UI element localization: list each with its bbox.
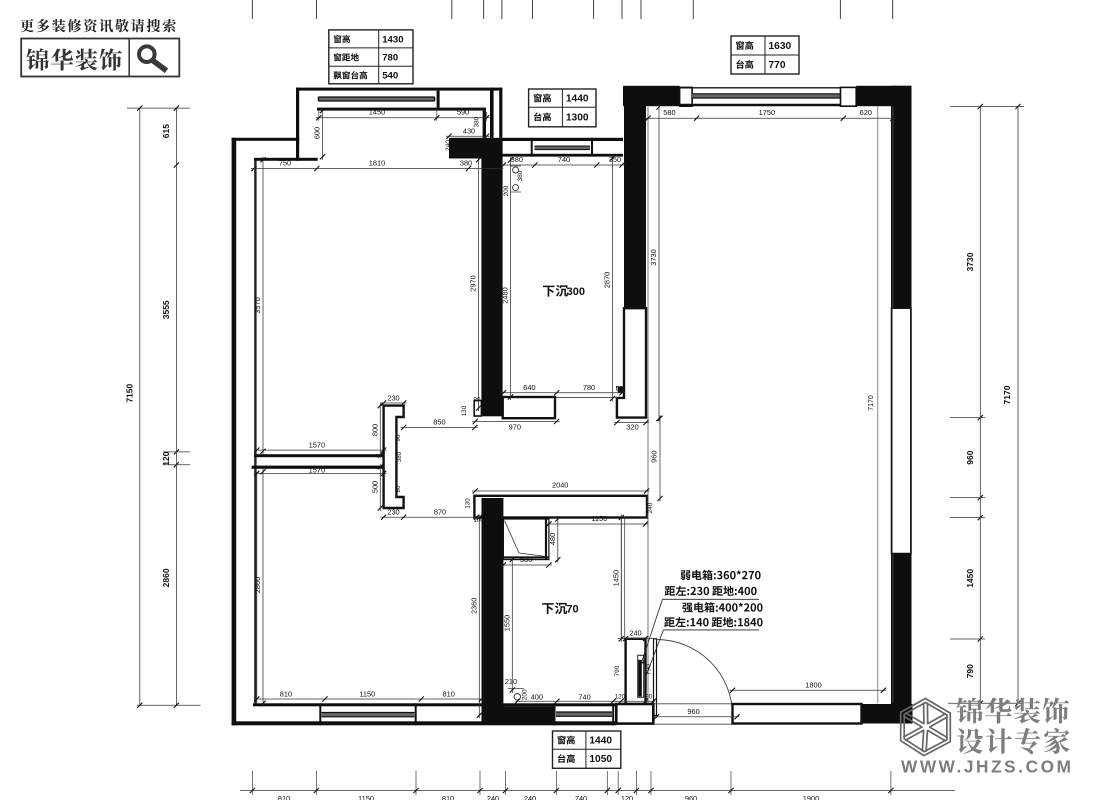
svg-text:1800: 1800 [805,681,821,690]
svg-text:1550: 1550 [503,615,512,631]
svg-text:1450: 1450 [369,108,385,117]
svg-text:1450: 1450 [612,570,621,586]
svg-text:2860: 2860 [253,577,262,593]
svg-text:600: 600 [313,127,322,139]
svg-text:70: 70 [566,604,578,616]
svg-text:640: 640 [523,383,535,392]
svg-text:500: 500 [371,481,380,493]
svg-text:120: 120 [621,794,633,800]
svg-text:240: 240 [647,502,654,513]
svg-text:1900: 1900 [803,794,819,800]
svg-text:1750: 1750 [759,108,775,117]
svg-text:740: 740 [578,692,590,701]
svg-text:1050: 1050 [589,754,612,765]
svg-text:740: 740 [575,794,587,800]
svg-text:970: 970 [509,423,521,432]
svg-text:230: 230 [387,508,399,517]
svg-text:480: 480 [548,533,557,545]
svg-text:200: 200 [521,689,528,700]
svg-text:810: 810 [443,690,455,699]
svg-text:3570: 3570 [253,297,262,313]
svg-text:2860: 2860 [161,568,171,587]
svg-text:615: 615 [161,124,171,138]
svg-text:790: 790 [646,664,653,675]
svg-text:90: 90 [395,434,402,441]
svg-text:3555: 3555 [161,300,171,319]
svg-text:960: 960 [685,794,697,800]
svg-text:1430: 1430 [382,34,403,45]
svg-text:790: 790 [965,664,975,678]
svg-text:580: 580 [520,555,532,564]
svg-text:740: 740 [558,155,570,164]
svg-text:120: 120 [161,451,171,465]
svg-text:320: 320 [626,423,638,432]
svg-text:7150: 7150 [125,383,135,402]
svg-text:240: 240 [629,629,641,638]
svg-text:50: 50 [616,386,624,393]
svg-text:7170: 7170 [1002,385,1012,404]
svg-text:1150: 1150 [591,514,607,523]
svg-text:1300: 1300 [566,112,589,123]
svg-text:1150: 1150 [358,794,374,800]
svg-text:1440: 1440 [566,94,589,105]
svg-text:2870: 2870 [603,272,612,288]
svg-text:7170: 7170 [868,395,875,411]
svg-text:240: 240 [524,794,536,800]
svg-text:770: 770 [769,60,786,71]
svg-text:870: 870 [434,508,446,517]
svg-text:3730: 3730 [965,252,975,271]
svg-text:380: 380 [511,155,523,164]
svg-text:240: 240 [445,140,452,151]
svg-text:1810: 1810 [369,158,385,167]
svg-text:810: 810 [280,690,292,699]
svg-text:960: 960 [687,707,699,716]
svg-text:3730: 3730 [649,249,658,265]
svg-text:780: 780 [382,53,398,64]
svg-text:90: 90 [645,693,653,700]
svg-text:810: 810 [442,794,454,800]
svg-text:120: 120 [615,693,626,700]
svg-text:960: 960 [965,450,975,464]
svg-text:2970: 2970 [469,275,478,291]
svg-text:750: 750 [279,158,291,167]
svg-text:850: 850 [433,418,445,427]
svg-text:1630: 1630 [769,41,792,52]
svg-text:130: 130 [461,405,468,416]
svg-text:80: 80 [395,485,402,492]
svg-text:960: 960 [650,451,659,463]
svg-text:400: 400 [531,692,543,701]
svg-text:620: 620 [860,108,872,117]
svg-text:380: 380 [396,451,403,462]
svg-text:810: 810 [278,794,290,800]
svg-text:1570: 1570 [309,466,325,475]
svg-text:800: 800 [371,424,380,436]
svg-text:540: 540 [382,71,398,82]
svg-text:2040: 2040 [552,481,568,490]
svg-text:380: 380 [517,170,524,181]
svg-text:380: 380 [460,158,472,167]
svg-text:590: 590 [457,108,469,117]
svg-text:210: 210 [505,677,517,686]
svg-text:780: 780 [583,383,595,392]
svg-text:2360: 2360 [470,598,479,614]
svg-text:380: 380 [474,116,481,127]
svg-text:2480: 2480 [501,287,510,303]
svg-text:130: 130 [464,498,471,509]
svg-text:230: 230 [387,393,399,402]
svg-text:1440: 1440 [589,736,612,747]
svg-text:1150: 1150 [359,690,375,699]
svg-text:WWW.JHZS.COM: WWW.JHZS.COM [901,757,1074,777]
svg-text:200: 200 [503,185,510,196]
svg-text:300: 300 [567,286,585,298]
svg-text:1450: 1450 [965,569,975,588]
svg-text:790: 790 [614,665,621,676]
svg-text:90: 90 [474,397,481,404]
svg-text:240: 240 [487,794,499,800]
svg-text:580: 580 [663,108,675,117]
svg-text:1570: 1570 [309,440,325,449]
